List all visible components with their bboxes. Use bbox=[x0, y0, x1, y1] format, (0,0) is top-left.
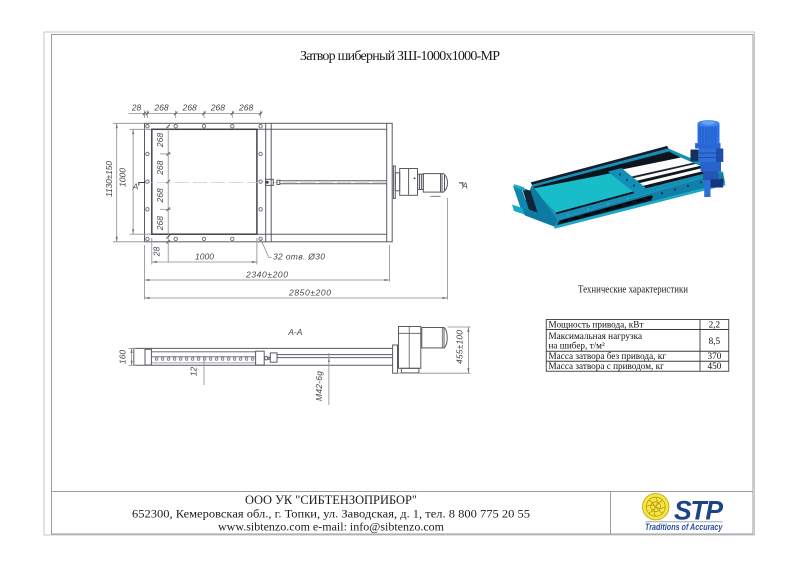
svg-text:268: 268 bbox=[153, 103, 168, 113]
svg-text:268: 268 bbox=[155, 160, 165, 175]
svg-text:28: 28 bbox=[152, 247, 162, 258]
svg-text:268: 268 bbox=[238, 103, 253, 113]
svg-text:450: 450 bbox=[708, 361, 722, 371]
svg-text:268: 268 bbox=[155, 188, 165, 203]
svg-text:268: 268 bbox=[155, 216, 165, 231]
svg-text:268: 268 bbox=[155, 133, 165, 148]
svg-text:Максимальная нагрузка: Максимальная нагрузка bbox=[549, 331, 643, 341]
svg-text:А-А: А-А bbox=[287, 327, 303, 337]
svg-text:Технические характеристики: Технические характеристики bbox=[578, 285, 689, 296]
svg-text:1000: 1000 bbox=[195, 252, 214, 262]
svg-text:268: 268 bbox=[210, 103, 225, 113]
svg-text:www.sibtenzo.com e-mail: info@: www.sibtenzo.com e-mail: info@sibtenzo.c… bbox=[218, 519, 445, 533]
svg-text:32 отв. Ø30: 32 отв. Ø30 bbox=[273, 252, 325, 262]
svg-text:1130±150: 1130±150 bbox=[104, 161, 114, 197]
svg-text:на шибер, т/м²: на шибер, т/м² bbox=[549, 341, 605, 351]
svg-text:160: 160 bbox=[117, 350, 127, 364]
svg-text:А: А bbox=[461, 181, 468, 191]
svg-text:8,5: 8,5 bbox=[709, 336, 721, 346]
svg-text:STP: STP bbox=[674, 496, 723, 526]
svg-text:28: 28 bbox=[131, 103, 142, 113]
svg-text:268: 268 bbox=[182, 103, 197, 113]
svg-text:Мощность привода, кВт: Мощность привода, кВт bbox=[549, 319, 644, 329]
svg-text:1000: 1000 bbox=[118, 168, 128, 187]
svg-text:2340±200: 2340±200 bbox=[245, 270, 288, 280]
svg-text:12: 12 bbox=[189, 367, 199, 377]
svg-text:Затвор шиберный ЗШ-1000х1000-М: Затвор шиберный ЗШ-1000х1000-МР bbox=[300, 49, 500, 64]
svg-text:2,2: 2,2 bbox=[709, 319, 721, 329]
svg-text:Масса затвора с приводом, кг: Масса затвора с приводом, кг bbox=[549, 361, 665, 371]
svg-text:455±100: 455±100 bbox=[455, 330, 465, 364]
svg-text:370: 370 bbox=[708, 351, 722, 361]
svg-text:Масса затвора без привода, кг: Масса затвора без привода, кг bbox=[549, 351, 667, 361]
svg-text:2850±200: 2850±200 bbox=[288, 288, 331, 298]
svg-text:А: А bbox=[132, 181, 139, 191]
svg-text:ООО УК "СИБТЕНЗОПРИБОР": ООО УК "СИБТЕНЗОПРИБОР" bbox=[245, 493, 417, 507]
svg-text:Traditions of Accuracy: Traditions of Accuracy bbox=[645, 522, 723, 532]
svg-text:М42-6g: М42-6g bbox=[314, 371, 324, 401]
